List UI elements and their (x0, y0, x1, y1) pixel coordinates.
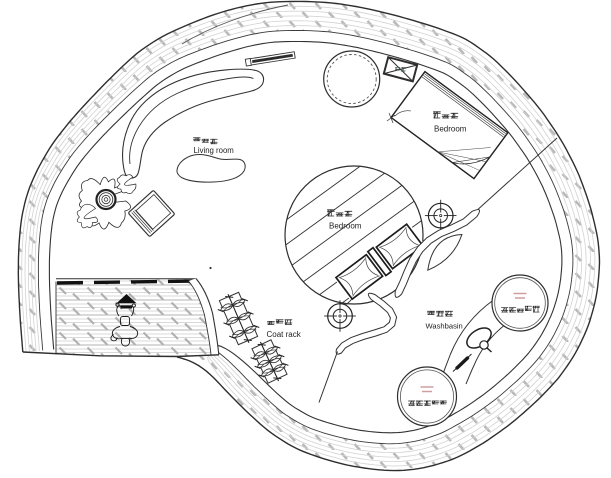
svg-text:Living room: Living room (194, 146, 234, 155)
svg-text:Coat rack: Coat rack (267, 330, 302, 339)
svg-text:Bedroom: Bedroom (434, 125, 467, 134)
svg-text:Washbasin: Washbasin (426, 322, 463, 331)
svg-text:Bedroom: Bedroom (329, 222, 362, 231)
